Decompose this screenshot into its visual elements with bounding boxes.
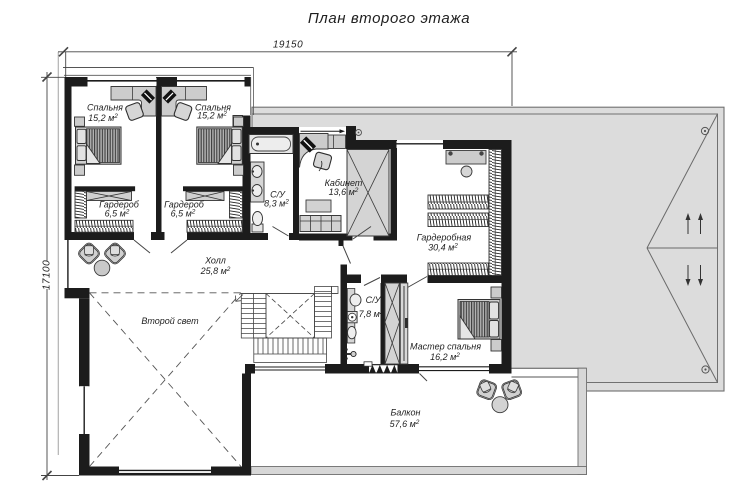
svg-text:С/У: С/У — [366, 295, 382, 305]
svg-text:19150: 19150 — [273, 40, 303, 51]
svg-text:Спальня: Спальня — [87, 103, 123, 113]
svg-text:17100: 17100 — [42, 260, 53, 290]
svg-text:План второго этажа: План второго этажа — [308, 10, 470, 27]
svg-text:Балкон: Балкон — [390, 408, 420, 418]
svg-text:15,2 м2: 15,2 м2 — [88, 113, 118, 123]
svg-text:Второй свет: Второй свет — [141, 316, 199, 326]
svg-text:25,8 м2: 25,8 м2 — [200, 266, 231, 276]
svg-text:13,6 м2: 13,6 м2 — [329, 187, 359, 197]
svg-text:57,6 м2: 57,6 м2 — [390, 419, 420, 429]
svg-text:30,4 м2: 30,4 м2 — [428, 243, 458, 253]
svg-text:16,2 м2: 16,2 м2 — [430, 352, 460, 362]
svg-text:Мастер спальня: Мастер спальня — [410, 342, 481, 352]
svg-text:Холл: Холл — [204, 256, 226, 266]
svg-text:Гардеробная: Гардеробная — [417, 233, 472, 243]
svg-text:15,2 м2: 15,2 м2 — [197, 111, 227, 121]
